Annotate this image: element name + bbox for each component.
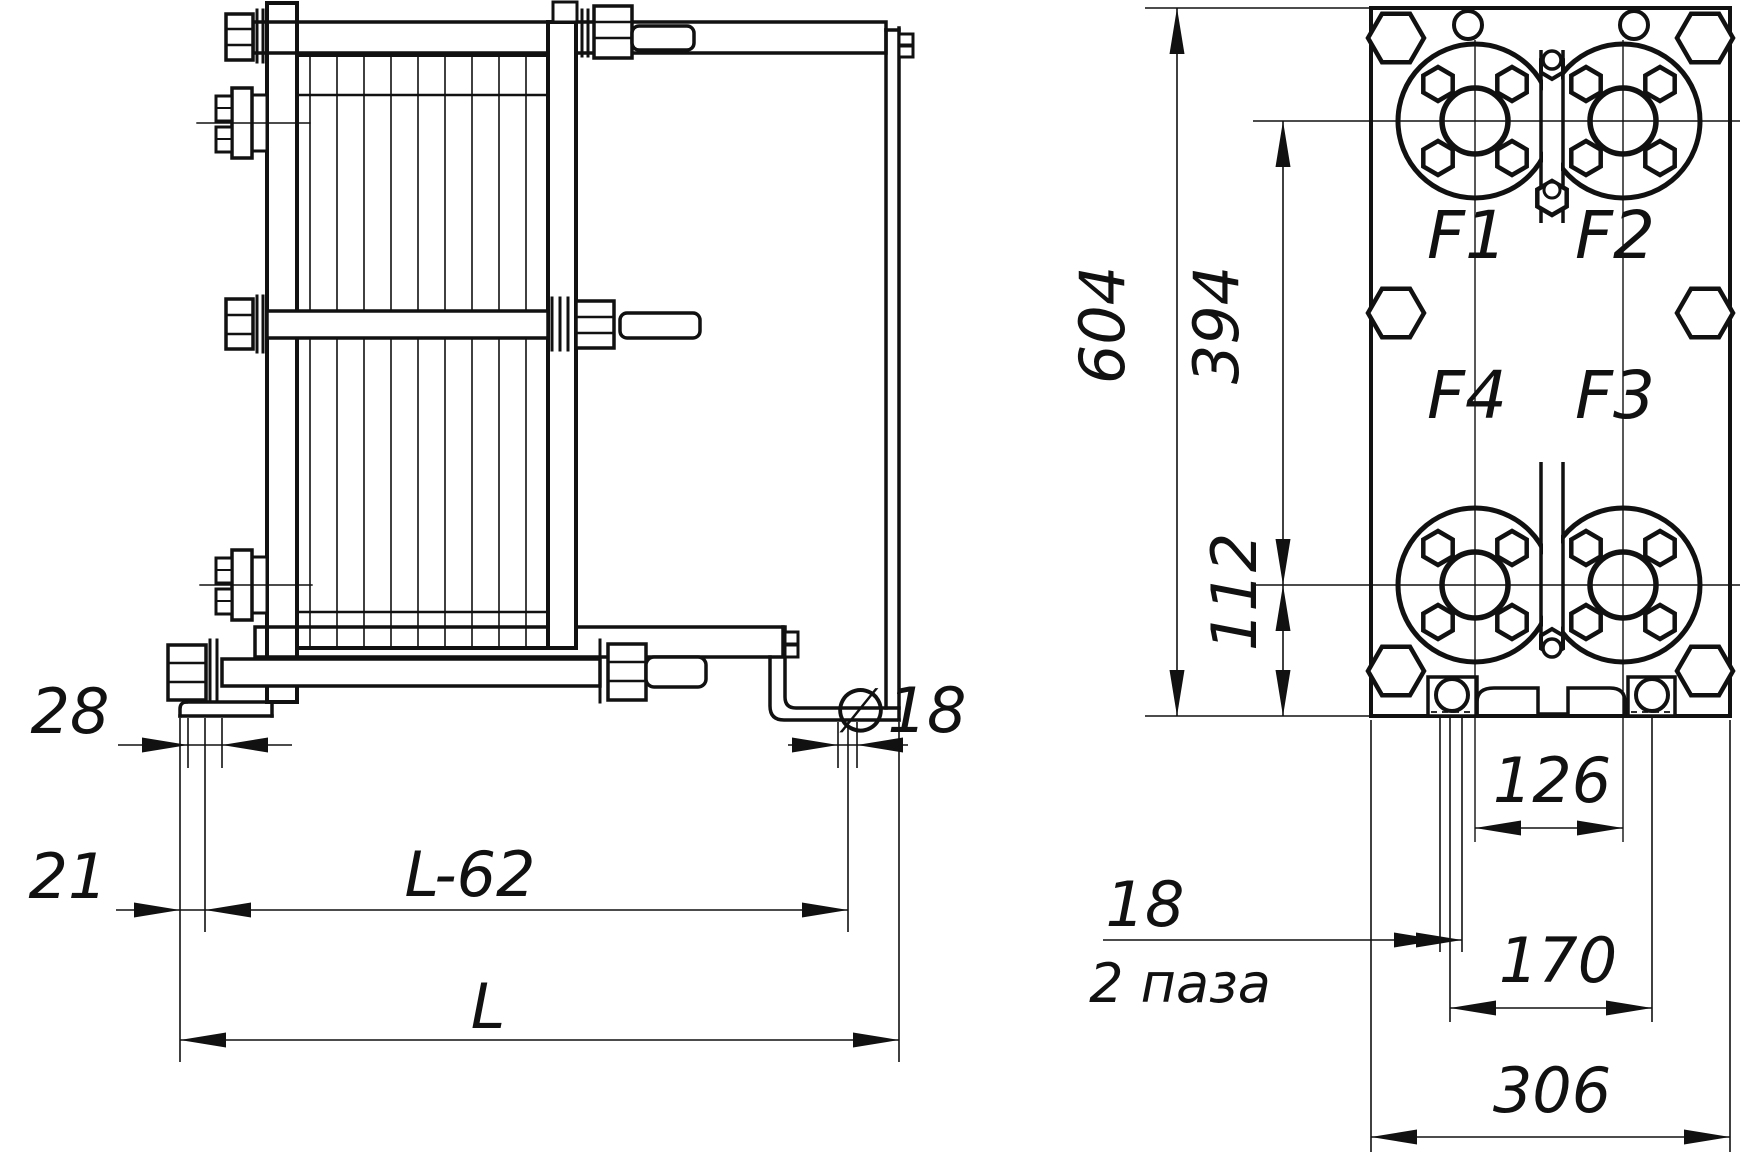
side-view	[168, 2, 913, 720]
note-label-2-slots: 2 паза	[1089, 952, 1271, 1015]
dim-label-394: 394	[1180, 266, 1253, 384]
left-foot	[180, 702, 272, 716]
port-label-f1: F1	[1427, 197, 1507, 274]
front-view: F1 F2 F4 F3	[1253, 8, 1740, 842]
drawing-canvas: F1 F2 F4 F3 2	[0, 0, 1741, 1174]
port-label-f3: F3	[1575, 357, 1655, 434]
dim-label-170: 170	[1499, 924, 1617, 997]
note-label-18: 18	[1106, 868, 1185, 941]
note-slots: 18 2 паза	[1089, 868, 1462, 1015]
dim-170: 170	[1450, 924, 1652, 1016]
dim-394: 394	[1180, 121, 1291, 585]
dim-306: 306	[1371, 1054, 1730, 1145]
port-label-f2: F2	[1575, 197, 1655, 274]
dim-label-L: L	[471, 970, 506, 1043]
dim-126: 126	[1475, 744, 1623, 836]
dim-L: L	[180, 970, 899, 1048]
dim-label-112: 112	[1198, 533, 1271, 651]
dim-604: 604	[1066, 8, 1185, 716]
port-label-f4: F4	[1427, 357, 1507, 434]
dim-label-604: 604	[1066, 266, 1139, 384]
lower-bridge	[1541, 462, 1563, 657]
dim-label-dia18: ∅18	[834, 674, 967, 747]
support-column	[886, 28, 913, 720]
dim-label-126: 126	[1493, 744, 1611, 817]
dim-dia18: ∅18	[788, 674, 966, 753]
dim-label-21: 21	[29, 840, 108, 913]
dim-112: 112	[1198, 533, 1291, 716]
upper-bridge	[1537, 50, 1566, 223]
dim-label-28: 28	[31, 675, 110, 748]
heat-exchanger-drawing: F1 F2 F4 F3 2	[0, 0, 1741, 1174]
dim-21-L62: 21 L-62	[29, 838, 848, 918]
plate-pack	[297, 55, 548, 648]
dim-label-L62: L-62	[405, 838, 536, 911]
fixed-frame-plate	[267, 3, 297, 702]
dim-label-306: 306	[1493, 1054, 1611, 1127]
